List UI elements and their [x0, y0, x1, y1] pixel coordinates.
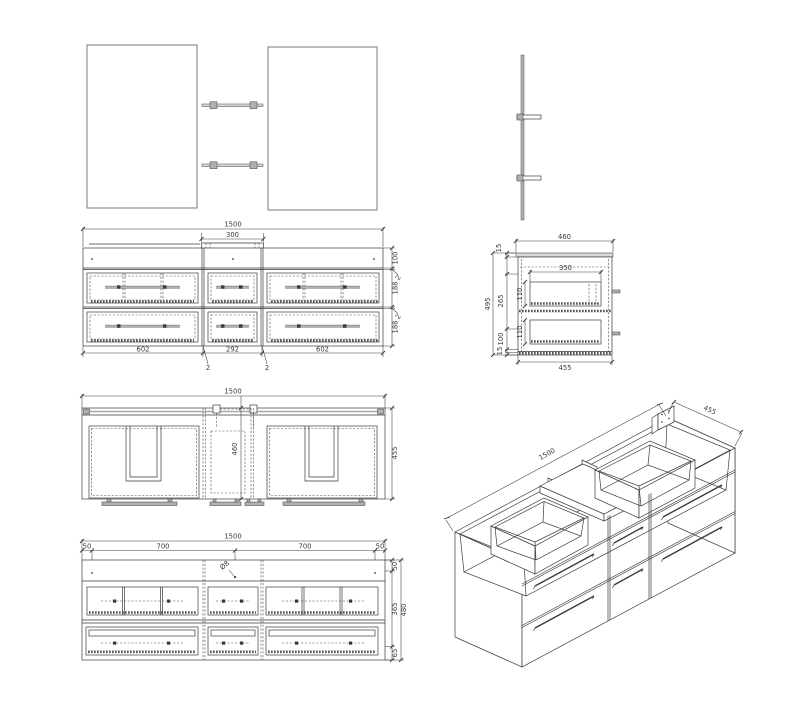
dim-top: 1500 [80, 388, 387, 409]
drawer-front-lower-left [87, 312, 198, 342]
svg-text:1500: 1500 [224, 533, 241, 541]
dim-right-depth: 455 [385, 406, 399, 501]
drawer-front-upper-left [87, 273, 198, 303]
dim-right: 100 2 188 2 188 [383, 246, 403, 348]
svg-text:455: 455 [559, 364, 572, 372]
dim-bottom-left: 602 [137, 346, 150, 354]
rear-drawer-lower-right [266, 627, 378, 655]
svg-text:265: 265 [497, 295, 505, 308]
drawer-front-upper-right [267, 273, 379, 303]
svg-text:350: 350 [559, 264, 572, 272]
rear-drawer-upper-center [208, 587, 258, 615]
drawer-front-upper-center [208, 273, 257, 303]
rear-drawer-upper-left [87, 587, 198, 615]
mirror-connector-top [202, 102, 263, 109]
isometric-view: 1500 455 [440, 388, 800, 710]
dim-drawer-lower: 188 [392, 321, 400, 334]
svg-text:50: 50 [376, 543, 385, 551]
side-section-view: 460 350 110 [485, 226, 635, 376]
svg-text:50: 50 [83, 543, 92, 551]
mirror-left [87, 45, 197, 208]
mirror-right [268, 47, 377, 210]
drawing-canvas: 1500 300 [0, 0, 800, 717]
dim-right: 50 365 65 480 [385, 558, 408, 662]
drawer-front-lower-right [267, 312, 379, 342]
dim-basin-width: 300 [226, 231, 239, 239]
dim-bottom-right: 602 [316, 346, 329, 354]
mounting-rails [102, 499, 365, 506]
svg-text:65: 65 [391, 649, 399, 658]
mirror-side-view [498, 48, 558, 228]
svg-text:1500: 1500 [538, 447, 557, 462]
mirror-bracket-bottom [517, 175, 541, 181]
dim-gap-upper: 2 [394, 274, 403, 282]
svg-text:15: 15 [496, 347, 504, 356]
basin-right [267, 426, 377, 498]
rear-elevation-view: 1500 50 700 700 50 Ø8 [70, 530, 415, 685]
countertop [516, 253, 613, 257]
mirror-edge [521, 55, 524, 220]
svg-text:700: 700 [299, 543, 312, 551]
mirror-connector-bottom [202, 162, 263, 169]
basin-left [89, 426, 199, 498]
handle-side-upper [612, 290, 620, 293]
drawer-front-lower-center [208, 312, 257, 342]
handle-side-lower [612, 332, 620, 335]
rear-drawer-upper-right [266, 587, 378, 615]
svg-text:1500: 1500 [224, 388, 241, 396]
dim-460: 460 [558, 233, 571, 241]
dim-bottom-center: 292 [226, 346, 239, 354]
dim-total-width: 1500 [224, 221, 241, 229]
svg-text:15: 15 [495, 244, 503, 253]
svg-text:455: 455 [391, 447, 399, 460]
svg-text:110: 110 [516, 288, 524, 301]
svg-text:460: 460 [231, 443, 239, 456]
dim-partition-right: 2 [265, 364, 269, 372]
dim-left-chain: 15 265 100 15 495 [484, 244, 518, 357]
svg-text:495: 495 [484, 298, 492, 311]
svg-text:480: 480 [400, 604, 408, 617]
rear-drawer-lower-left [86, 627, 198, 655]
dim-bottom: 602 292 602 2 2 [81, 346, 385, 373]
drawer-box-upper [530, 282, 601, 306]
rear-drawer-lower-center [208, 627, 258, 655]
dim-bottom-width: 455 [516, 355, 614, 372]
drawer-box-lower [530, 320, 601, 344]
dim-top-width: 460 [514, 233, 615, 252]
svg-text:100: 100 [497, 333, 505, 346]
svg-text:365: 365 [391, 603, 399, 616]
front-elevation-view: 1500 300 [70, 218, 415, 373]
svg-text:455: 455 [702, 404, 717, 417]
mirror-bracket-top [517, 114, 541, 120]
plan-section-view: 1500 460 [70, 385, 415, 520]
dim-drawer-upper: 188 [392, 282, 400, 295]
svg-text:50: 50 [391, 562, 399, 571]
mirror-front-view [80, 38, 390, 218]
dim-gap-lower: 2 [394, 313, 403, 321]
dim-partition-left: 2 [206, 364, 210, 372]
svg-text:110: 110 [516, 326, 524, 339]
svg-text:700: 700 [157, 543, 170, 551]
dim-top-rail: 100 [392, 252, 400, 265]
